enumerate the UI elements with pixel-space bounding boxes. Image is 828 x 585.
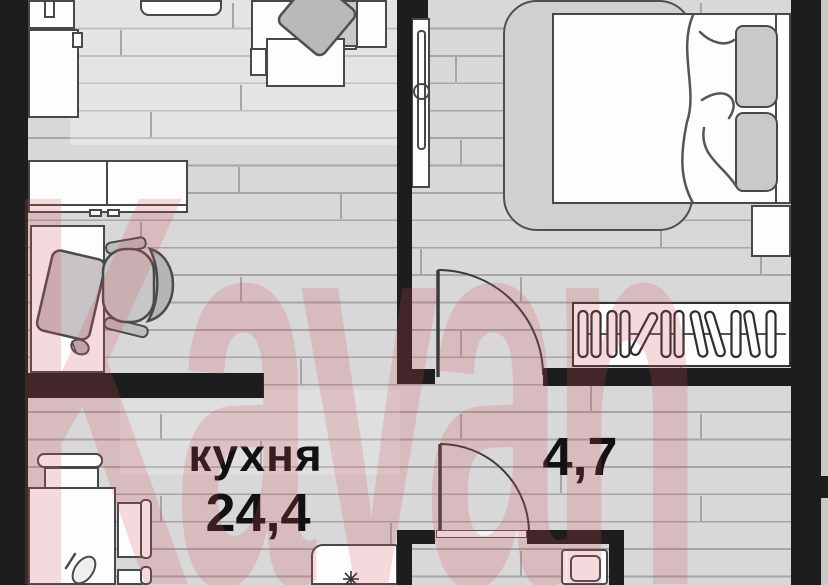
kitchen-stove — [311, 544, 398, 585]
floor-plank-seam — [120, 30, 122, 55]
cabinet-handle — [44, 0, 55, 18]
floor-plank-seam — [300, 359, 302, 384]
wall-left — [0, 0, 28, 585]
floor-plank-seam — [160, 496, 162, 521]
wardrobe-knob — [72, 32, 83, 48]
wall-kitchen — [0, 373, 264, 398]
bathroom-door-threshold — [436, 530, 527, 538]
floor-plank-seam — [420, 249, 422, 274]
room-area-kitchen: 24,4 — [178, 486, 338, 540]
dining-chair-back — [37, 453, 103, 468]
armchair-armrest — [250, 48, 267, 76]
shelf-handle — [107, 209, 120, 217]
floorplan: кухня 24,4 4,7 Kayan — [0, 0, 828, 585]
floor-plank-seam — [238, 167, 240, 192]
wardrobe-closet — [572, 302, 791, 367]
side-table — [140, 0, 222, 16]
shelf-handle — [89, 209, 102, 217]
wall-bedroom-bottom — [543, 368, 791, 386]
room-area-hallway: 4,7 — [515, 430, 645, 484]
dining-chair-back — [140, 566, 152, 585]
floor-plank-seam — [520, 277, 522, 302]
floor-plank-seam — [700, 414, 702, 439]
armchair-ottoman — [266, 38, 345, 87]
washing-machine-drum — [570, 555, 601, 582]
pillow — [735, 25, 778, 108]
wall-divider — [397, 0, 412, 371]
dining-table — [28, 487, 116, 585]
floor-plank-seam — [240, 85, 242, 110]
floor-plank-seam — [460, 331, 462, 356]
pillow — [735, 112, 778, 192]
floor-plank-seam — [150, 112, 152, 137]
wall-door-stub — [397, 369, 435, 384]
dining-chair-back — [140, 499, 152, 559]
wall-right-pier — [814, 476, 828, 498]
floor-plank-seam — [455, 57, 457, 82]
desk — [30, 225, 105, 373]
floor-plank-seam — [140, 222, 142, 247]
floor-plank-seam — [460, 140, 462, 165]
floor-plank-seam — [460, 414, 462, 439]
tall-cabinet-knob — [413, 83, 430, 100]
floor-plank-seam — [232, 3, 234, 28]
wall-bathroom-left — [397, 530, 412, 585]
wall-divider-stub — [397, 0, 428, 18]
bedroom-door — [438, 270, 543, 377]
floor-plank-seam — [590, 386, 592, 411]
room-label-kitchen: кухня — [168, 432, 343, 478]
floor-plank-seam — [520, 551, 522, 576]
floor-plank-seam — [340, 194, 342, 219]
armchair-side — [356, 0, 387, 48]
shelf-cabinet-right — [106, 160, 188, 207]
nightstand — [751, 205, 791, 257]
floor-plank-seam — [160, 414, 162, 439]
office-chair — [103, 237, 173, 339]
wall-bathroom-right — [609, 530, 624, 585]
floor-plank-seam — [240, 277, 242, 302]
shelf-cabinet-left — [28, 160, 108, 207]
floor-plank-seam — [700, 496, 702, 521]
